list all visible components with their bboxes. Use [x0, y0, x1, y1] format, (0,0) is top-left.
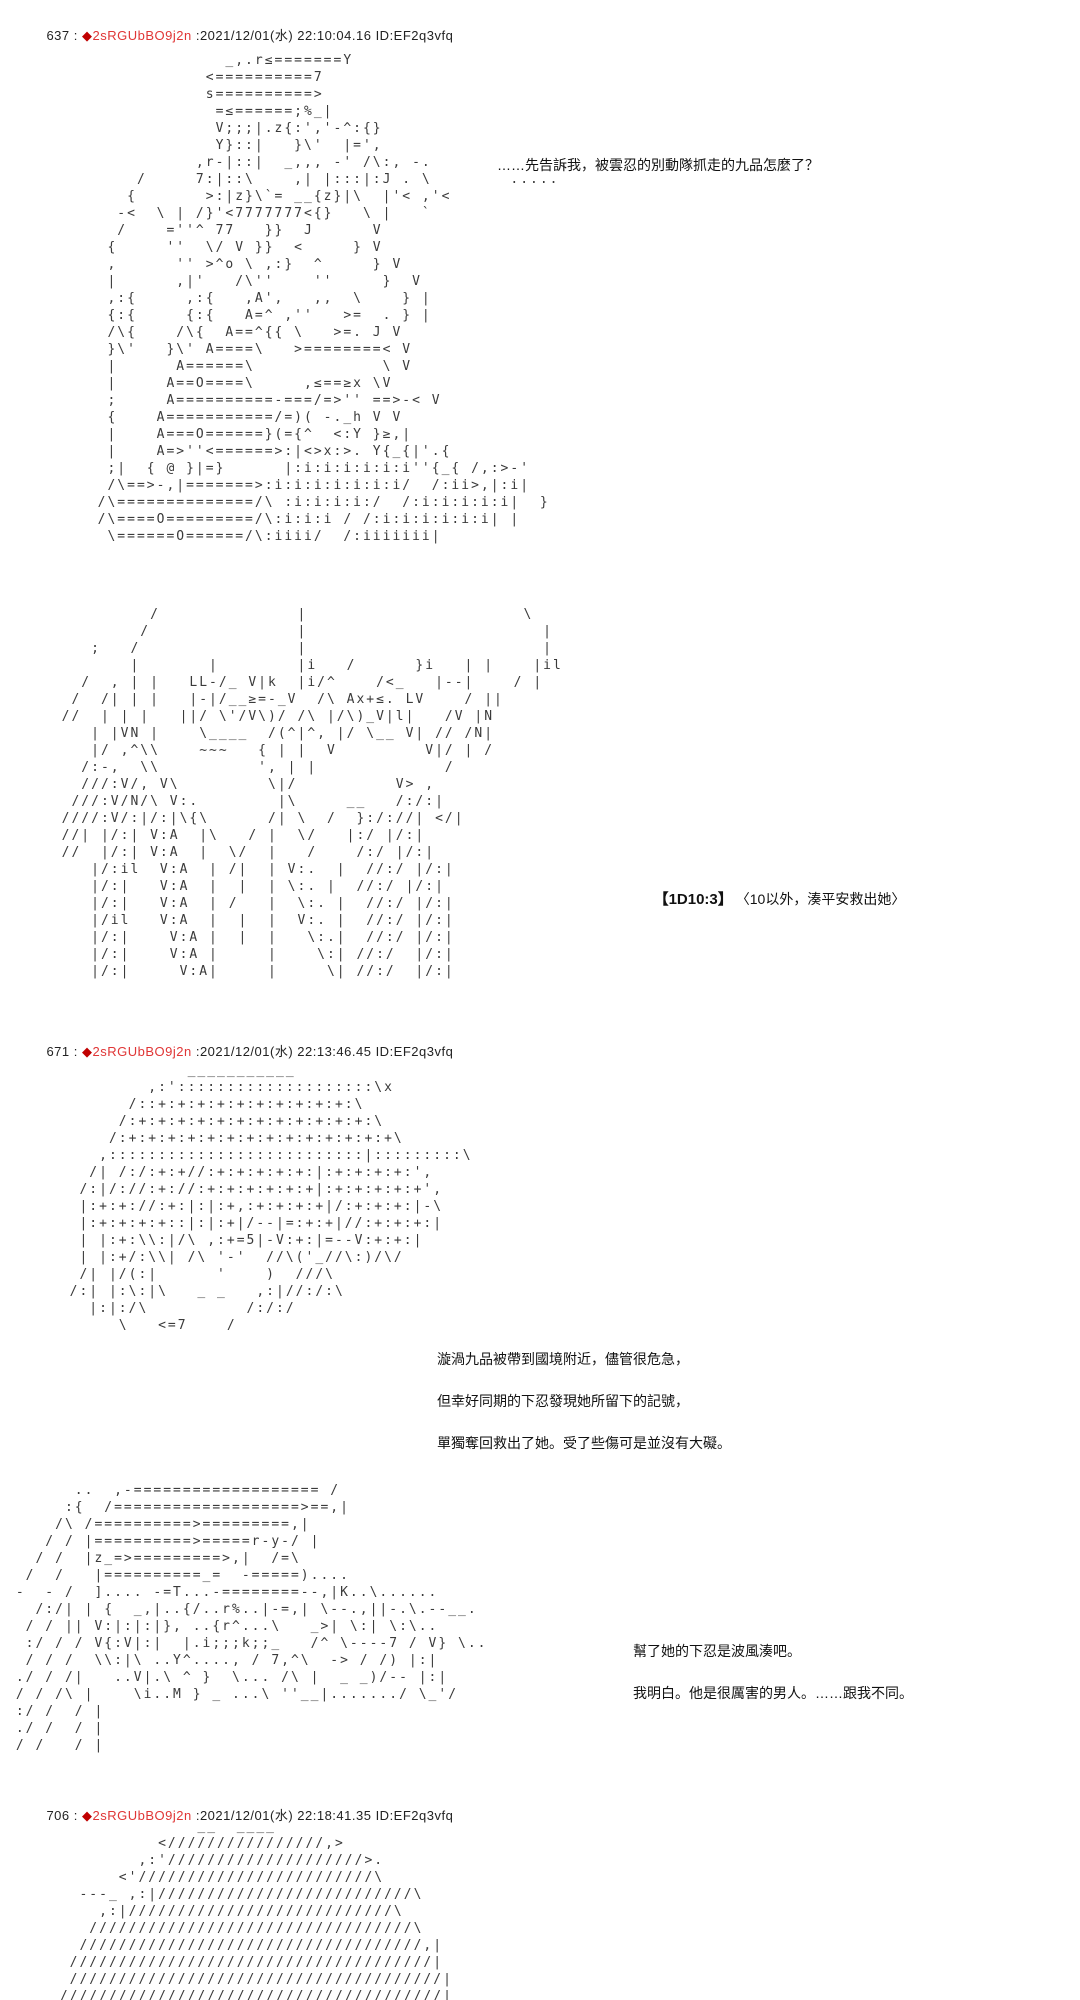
ascii-art-desk-figure: .. ,-=================== / :{ /=========…: [6, 1482, 488, 1754]
dialogue-line-637: ……先告訴我，被雲忍的別動隊抓走的九品怎麼了？: [497, 155, 819, 175]
tripcode: 2sRGUbBO9j2n: [93, 28, 192, 43]
tripcode-diamond-icon: ◆: [82, 1044, 93, 1059]
ascii-art-hokage-hat: _,.r≤=======Y <==========7 s==========> …: [78, 52, 560, 545]
header-separator: :: [70, 1044, 82, 1059]
post-number: 671: [46, 1044, 69, 1059]
tripcode: 2sRGUbBO9j2n: [93, 1044, 192, 1059]
dialogue-lines-671: 幫了她的下忍是波風湊吧。 我明白。他是很厲害的男人。……跟我不同。: [633, 1630, 913, 1714]
ascii-art-round-head: ___________ ,:'::::::::::::::::::::\x /:…: [50, 1062, 473, 1334]
ascii-art-hatched-head: __ ____ <////////////////,> ,:'/////////…: [50, 1818, 453, 2000]
dice-roll-result-text: 〈10以外，湊平安救出她〉: [743, 891, 906, 907]
header-separator: :: [70, 28, 82, 43]
ascii-art-standing-figure: / | \ / | | ; / | | | | |i / }i | | |il: [42, 606, 563, 980]
thread-page: 637 : ◆2sRGUbBO9j2n :2021/12/01(水) 22:10…: [0, 0, 1080, 2000]
post-datetime-id: :2021/12/01(水) 22:13:46.45 ID:EF2q3vfq: [192, 1044, 454, 1059]
dice-roll-line: 【1D10:3】〈10以外，湊平安救出她〉: [638, 872, 905, 925]
post-number: 637: [46, 28, 69, 43]
narration-text-671: 漩渦九品被帶到國境附近，儘管很危急， 但幸好同期的下忍發現她所留下的記號， 單獨…: [437, 1338, 731, 1464]
post-datetime-id: :2021/12/01(水) 22:10:04.16 ID:EF2q3vfq: [192, 28, 454, 43]
dice-roll-value: 【1D10:3】: [654, 891, 733, 908]
tripcode-diamond-icon: ◆: [82, 28, 93, 43]
